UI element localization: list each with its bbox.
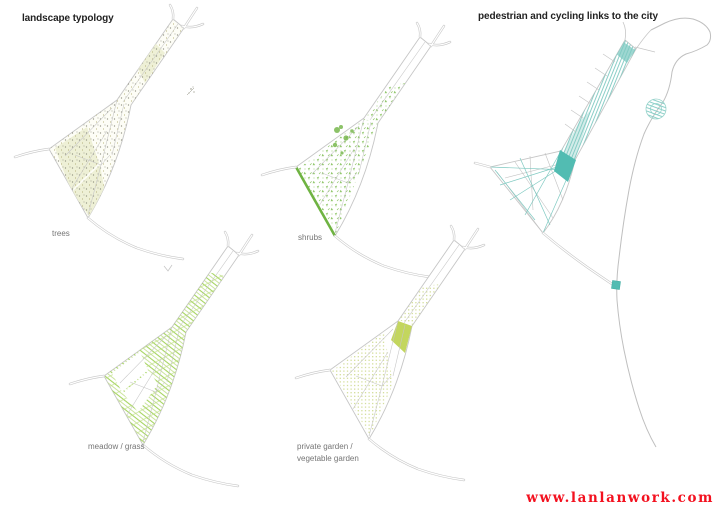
scribble-mark xyxy=(187,87,195,96)
meadow-label: meadow / grass xyxy=(88,441,144,453)
garden-plan xyxy=(296,226,496,476)
map-trees: trees xyxy=(15,5,215,255)
links-texture xyxy=(561,40,636,160)
shrubs-texture xyxy=(298,83,408,233)
links-plan xyxy=(475,10,720,450)
map-links xyxy=(475,10,720,450)
diagram-sheet: landscape typology pedestrian and cyclin… xyxy=(0,0,720,509)
teal-node-circle xyxy=(646,99,666,119)
garden-label-line1: private garden / xyxy=(297,442,353,451)
map-garden: private garden / vegetable garden xyxy=(296,226,496,476)
trees-label: trees xyxy=(52,228,70,240)
watermark: www.lanlanwork.com xyxy=(526,490,714,506)
garden-label: private garden / vegetable garden xyxy=(297,441,359,465)
city-boundary xyxy=(617,18,711,447)
teal-node-square xyxy=(611,280,620,289)
meadow-texture xyxy=(104,272,226,445)
garden-label-line2: vegetable garden xyxy=(297,454,359,463)
trees-texture xyxy=(35,5,215,235)
trees-plan xyxy=(15,5,215,255)
scribble-mark xyxy=(164,265,172,271)
map-meadow: meadow / grass xyxy=(70,232,270,482)
